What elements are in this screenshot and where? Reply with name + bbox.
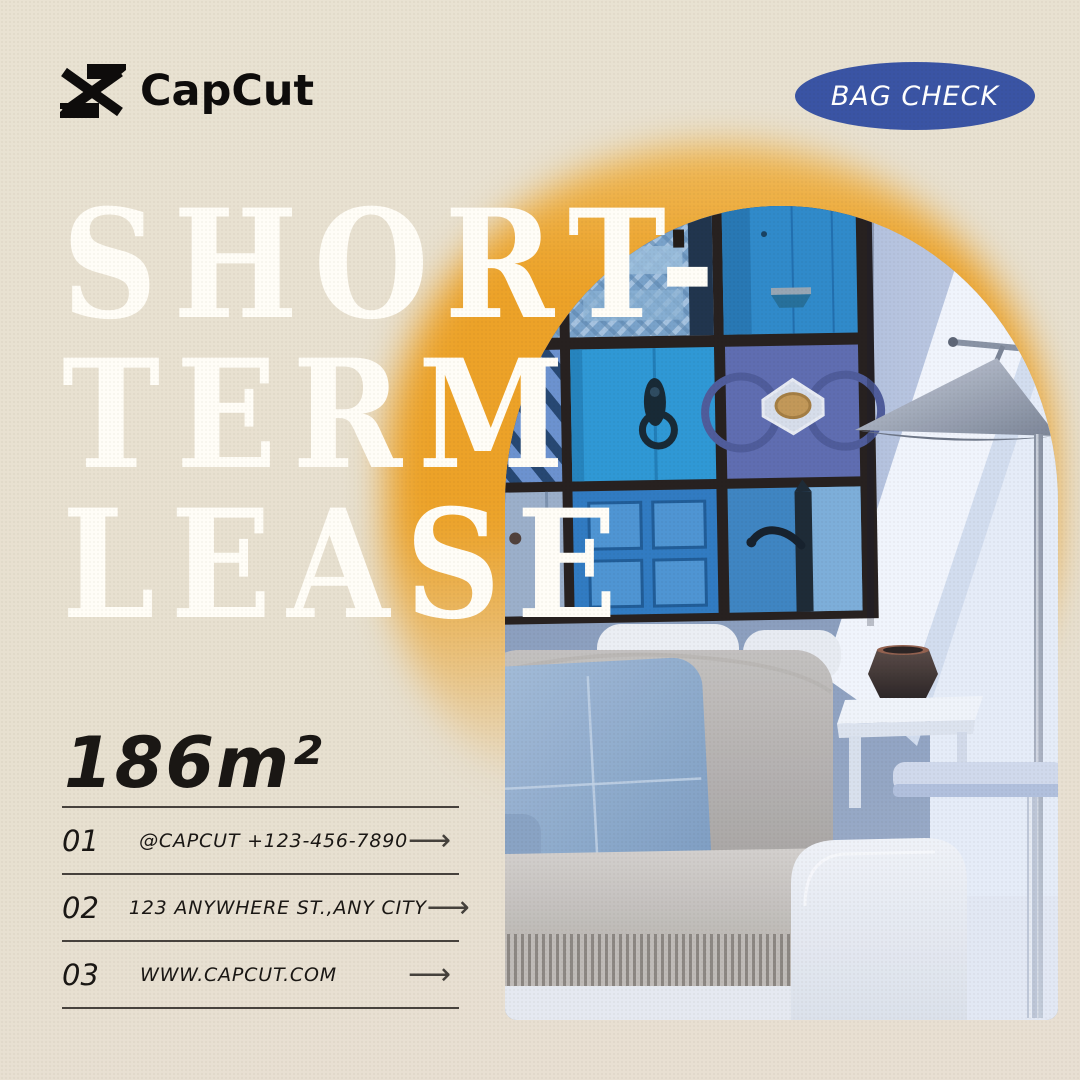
contact-list: 01 @CAPCUT +123-456-7890 ⟶ 02 123 ANYWHE… [62, 806, 459, 1009]
bag-check-badge-label: BAG CHECK [831, 81, 999, 112]
contact-row-index: 02 [62, 891, 99, 925]
headline-line-2: TERM [62, 340, 731, 490]
headline-line-3: LEASE [62, 490, 731, 640]
poster-canvas: CapCut BAG CHECK [0, 0, 1080, 1080]
headline-line-1: SHORT- [62, 190, 731, 340]
contact-row-website[interactable]: 03 WWW.CAPCUT.COM ⟶ [62, 940, 459, 1007]
arrow-right-icon[interactable]: ⟶ [427, 893, 478, 923]
capcut-logo-icon [60, 62, 126, 120]
area-value: 186m² [64, 722, 324, 804]
contact-row-index: 03 [62, 958, 110, 992]
contact-row-index: 01 [62, 824, 109, 858]
contact-row-phone[interactable]: 01 @CAPCUT +123-456-7890 ⟶ [62, 806, 459, 873]
bag-check-badge[interactable]: BAG CHECK [795, 62, 1035, 130]
contact-row-text: @CAPCUT +123-456-7890 [139, 830, 408, 852]
capcut-logo: CapCut [60, 62, 314, 120]
arrow-right-icon[interactable]: ⟶ [408, 826, 459, 856]
contact-row-address[interactable]: 02 123 ANYWHERE ST.,ANY CITY ⟶ [62, 873, 459, 940]
capcut-logo-text: CapCut [140, 66, 314, 116]
contact-row-text: WWW.CAPCUT.COM [140, 964, 337, 986]
headline: SHORT- TERM LEASE [62, 190, 822, 640]
contact-row-text: 123 ANYWHERE ST.,ANY CITY [129, 897, 427, 919]
arrow-right-icon[interactable]: ⟶ [408, 960, 459, 990]
